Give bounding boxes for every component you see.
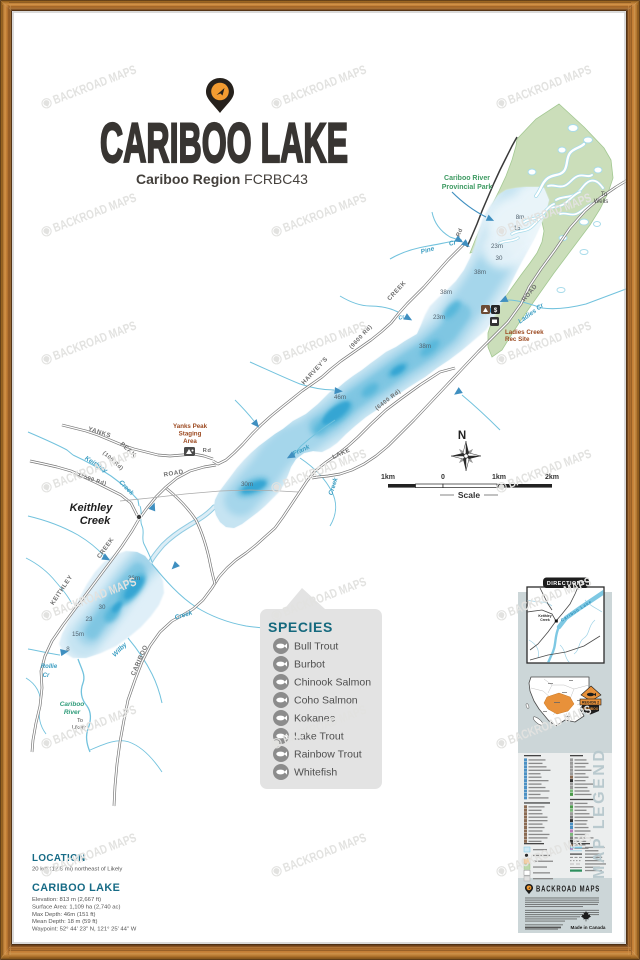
svg-text:23m: 23m <box>491 243 503 250</box>
svg-text:Bull Trout: Bull Trout <box>294 641 338 653</box>
svg-text:River: River <box>64 709 81 716</box>
svg-text:8: 8 <box>66 646 70 653</box>
svg-text:38m: 38m <box>474 269 486 276</box>
svg-text:Chinook Salmon: Chinook Salmon <box>294 677 371 689</box>
svg-text:Provincial Park: Provincial Park <box>442 184 493 191</box>
svg-text:1km: 1km <box>381 474 395 481</box>
svg-text:BACKROAD MAPS: BACKROAD MAPS <box>536 885 600 894</box>
svg-text:30: 30 <box>496 255 503 262</box>
svg-text:Made in Canada: Made in Canada <box>571 925 606 930</box>
svg-text:38m: 38m <box>440 289 452 296</box>
svg-text:30: 30 <box>99 604 106 611</box>
svg-text:Creek: Creek <box>540 618 550 622</box>
svg-text:Rollie: Rollie <box>41 664 58 670</box>
svg-text:30m: 30m <box>241 481 253 488</box>
svg-text:Cariboo: Cariboo <box>60 701 85 708</box>
svg-text:Elevation: 813 m (2,667 ft): Elevation: 813 m (2,667 ft) <box>32 897 101 903</box>
svg-text:Ladies Creek: Ladies Creek <box>505 329 544 336</box>
svg-text:Waypoint: 52° 44' 23" N, 121°: Waypoint: 52° 44' 23" N, 121° 25' 44" W <box>32 927 137 933</box>
svg-text:Keithley: Keithley <box>70 502 114 514</box>
svg-text:15m: 15m <box>72 631 84 638</box>
svg-text:46m: 46m <box>334 394 346 401</box>
svg-text:Surface Area: 1,109 ha (2,740: Surface Area: 1,109 ha (2,740 ac) <box>32 904 120 910</box>
svg-text:Mean Depth: 18 m (59 ft): Mean Depth: 18 m (59 ft) <box>32 919 98 925</box>
svg-text:23m: 23m <box>433 314 445 321</box>
svg-text:Cariboo River: Cariboo River <box>444 175 490 182</box>
svg-text:Yanks Peak: Yanks Peak <box>173 423 208 430</box>
svg-text:Whitefish: Whitefish <box>294 767 337 779</box>
svg-text:Staging: Staging <box>179 431 202 438</box>
svg-text:CARIBOO LAKE: CARIBOO LAKE <box>32 882 120 894</box>
svg-text:Burbot: Burbot <box>294 659 325 671</box>
svg-text:1km: 1km <box>492 474 506 481</box>
svg-text:Max Depth: 46m (151 ft): Max Depth: 46m (151 ft) <box>32 912 96 918</box>
svg-text:0: 0 <box>441 474 445 481</box>
svg-text:Rd: Rd <box>203 448 212 454</box>
svg-text:Creek: Creek <box>80 515 111 527</box>
svg-text:38m: 38m <box>419 343 431 350</box>
svg-text:Cr: Cr <box>43 673 50 679</box>
svg-text:Cariboo Region FCRBC43: Cariboo Region FCRBC43 <box>136 171 308 187</box>
svg-text:N: N <box>458 430 466 442</box>
svg-text:MAP LEGEND: MAP LEGEND <box>591 748 608 879</box>
svg-text:23: 23 <box>86 616 93 623</box>
svg-text:Scale: Scale <box>458 490 480 500</box>
svg-text:Wells: Wells <box>594 199 609 205</box>
svg-text:Coho Salmon: Coho Salmon <box>294 695 358 707</box>
svg-text:CARIBOO LAKE: CARIBOO LAKE <box>100 111 348 174</box>
svg-text:Area: Area <box>183 438 197 445</box>
svg-text:SPECIES: SPECIES <box>268 619 333 635</box>
svg-text:Rainbow Trout: Rainbow Trout <box>294 749 362 761</box>
svg-text:To: To <box>601 192 608 198</box>
